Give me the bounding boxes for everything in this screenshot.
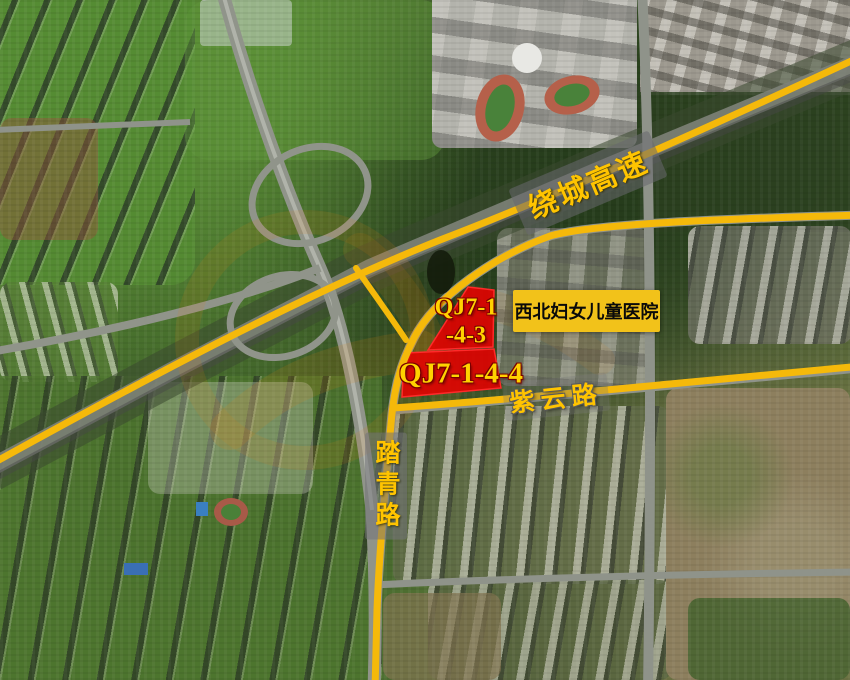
local-road-northwest — [0, 122, 190, 130]
dome-building — [512, 43, 542, 73]
road-label-taqing: 踏青路 — [365, 433, 407, 540]
local-road-south-horizontal — [372, 572, 850, 585]
satellite-map: 绕城高速 紫云路 踏青路 西北妇女儿童医院 QJ7-1 -4-3 QJ7-1-4… — [0, 0, 850, 680]
parcel-label-qj7-1-4-3-line1: QJ7-1 — [435, 294, 498, 322]
pond — [427, 250, 455, 294]
map-annotation-layer — [0, 0, 850, 680]
hospital-label-box: 西北妇女儿童医院 — [513, 290, 660, 332]
swimming-pool — [196, 502, 208, 516]
parcel-label-qj7-1-4-3: QJ7-1 -4-3 — [435, 294, 498, 349]
blue-courts — [124, 563, 148, 575]
stadium-field-southwest — [221, 504, 241, 520]
parcel-label-qj7-1-4-3-line2: -4-3 — [435, 322, 498, 350]
parcel-label-qj7-1-4-4: QJ7-1-4-4 — [399, 357, 523, 390]
